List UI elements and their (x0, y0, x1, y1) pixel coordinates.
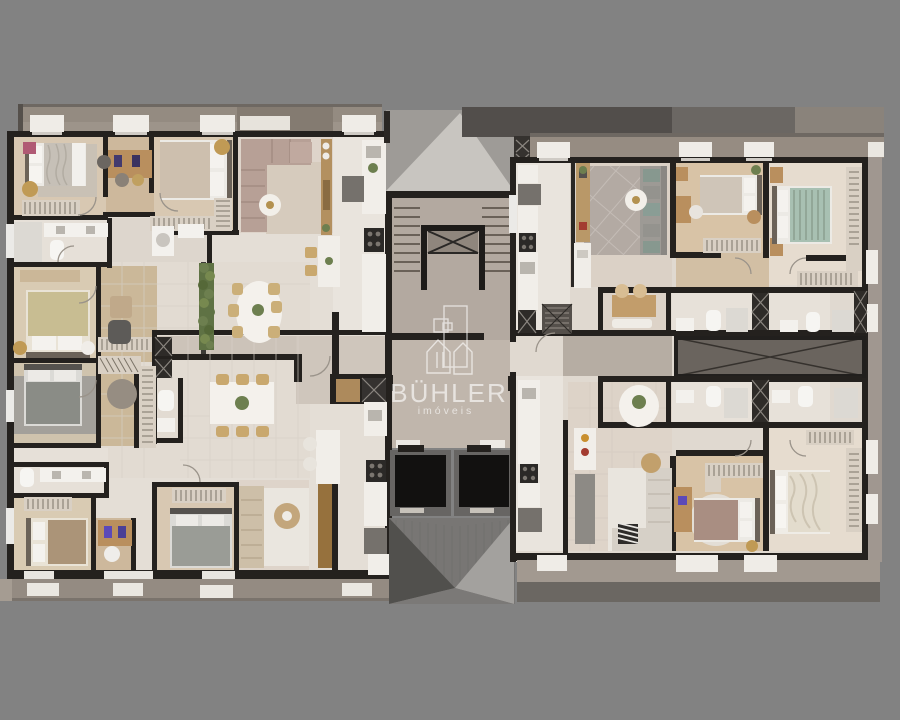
svg-text:BÜHLER: BÜHLER (390, 378, 507, 408)
svg-text:imóveis: imóveis (418, 405, 475, 417)
